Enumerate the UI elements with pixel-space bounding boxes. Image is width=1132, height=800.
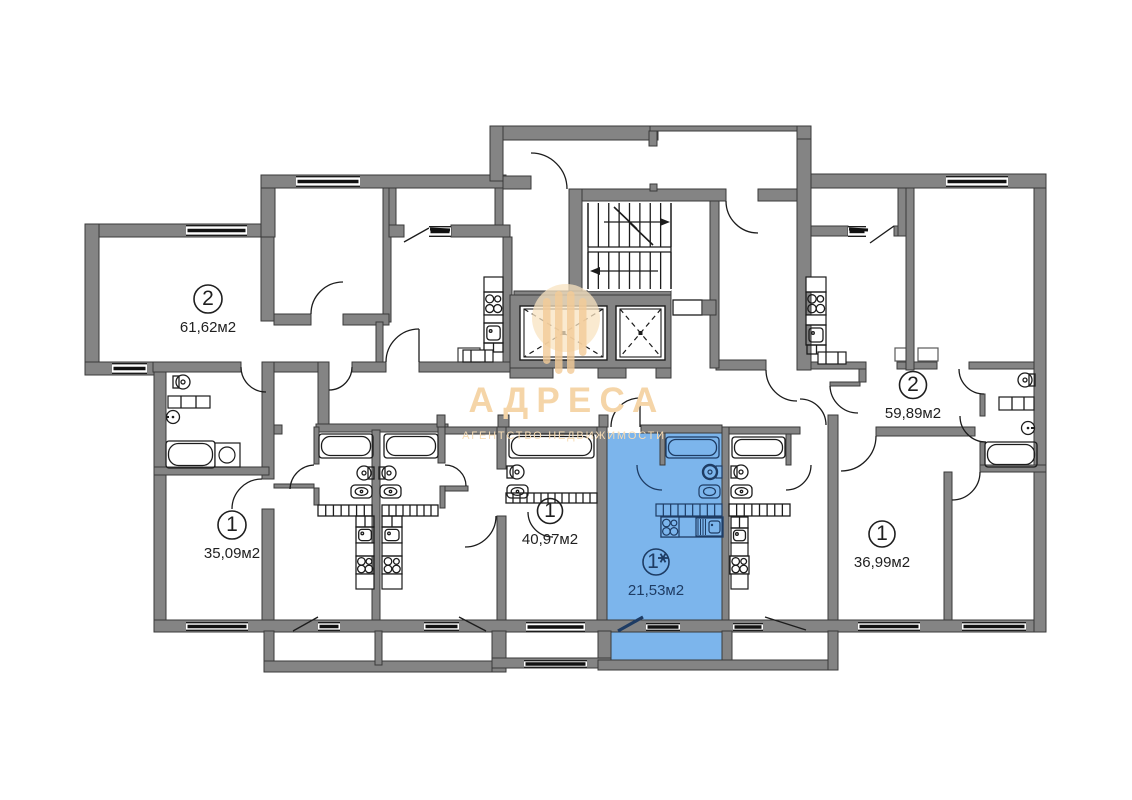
svg-text:61,62м2: 61,62м2	[180, 319, 236, 336]
svg-text:2: 2	[907, 373, 919, 396]
svg-text:1: 1	[876, 522, 888, 545]
svg-text:21,53м2: 21,53м2	[628, 582, 684, 599]
svg-text:40,97м2: 40,97м2	[522, 531, 578, 548]
svg-text:59,89м2: 59,89м2	[885, 405, 941, 422]
svg-text:1: 1	[226, 513, 238, 536]
svg-text:АГЕНТСТВО НЕДВИЖИМОСТИ: АГЕНТСТВО НЕДВИЖИМОСТИ	[462, 430, 666, 442]
svg-text:2: 2	[202, 287, 214, 310]
svg-text:АДРЕСА: АДРЕСА	[468, 381, 665, 420]
svg-text:1: 1	[544, 499, 556, 522]
svg-text:36,99м2: 36,99м2	[854, 554, 910, 571]
svg-text:35,09м2: 35,09м2	[204, 545, 260, 562]
svg-text:1: 1	[647, 550, 659, 573]
